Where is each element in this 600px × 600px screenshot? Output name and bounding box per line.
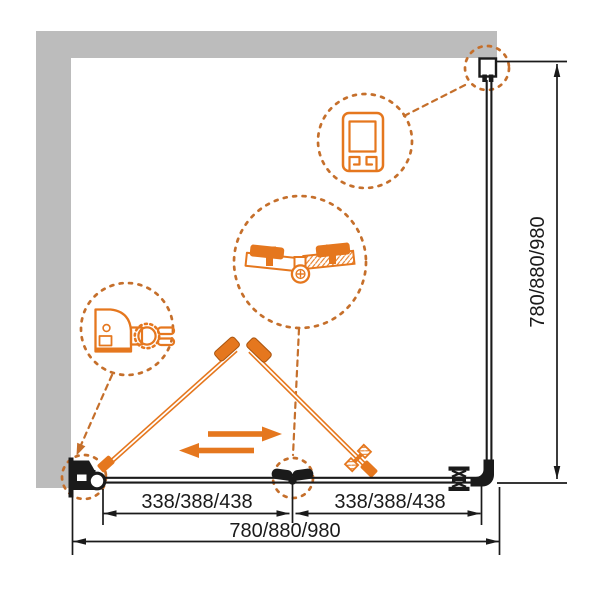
leader-line-profile xyxy=(404,84,467,116)
slide-arrow-right-icon xyxy=(208,431,263,437)
corner-elbow-connector xyxy=(471,460,495,487)
wall-bracket-detail xyxy=(96,310,175,352)
detail-circle-profile xyxy=(318,94,412,188)
dim-label-right-panel: 338/388/438 xyxy=(334,491,445,513)
shower-enclosure-diagram: 780/880/980 338/388/438 338/388/438 780/… xyxy=(0,0,600,600)
detail-callouts xyxy=(62,46,509,499)
bifold-doors xyxy=(97,336,379,478)
wall-left xyxy=(36,31,71,488)
frame-hardware xyxy=(69,59,497,498)
slide-arrow-left-icon xyxy=(199,448,254,454)
dim-label-left-panel: 338/388/438 xyxy=(141,491,252,513)
hinge-assembly-detail xyxy=(246,242,355,282)
diagram-canvas: 780/880/980 338/388/438 338/388/438 780/… xyxy=(0,0,600,600)
dimension-side-depth: 780/880/980 xyxy=(496,62,567,484)
top-wall-profile xyxy=(480,59,497,83)
pivot-roller xyxy=(89,473,105,489)
dim-label-side-depth: 780/880/980 xyxy=(527,216,549,327)
wall-top xyxy=(36,31,497,58)
leader-arrowhead-icon xyxy=(77,443,86,456)
dim-label-total-width: 780/880/980 xyxy=(229,520,340,542)
leader-line-wall-bracket xyxy=(81,375,112,445)
dimension-panel-widths: 338/388/438 338/388/438 xyxy=(103,483,482,525)
slide-direction-arrows xyxy=(179,427,282,459)
profile-cross-section-detail xyxy=(343,113,383,171)
